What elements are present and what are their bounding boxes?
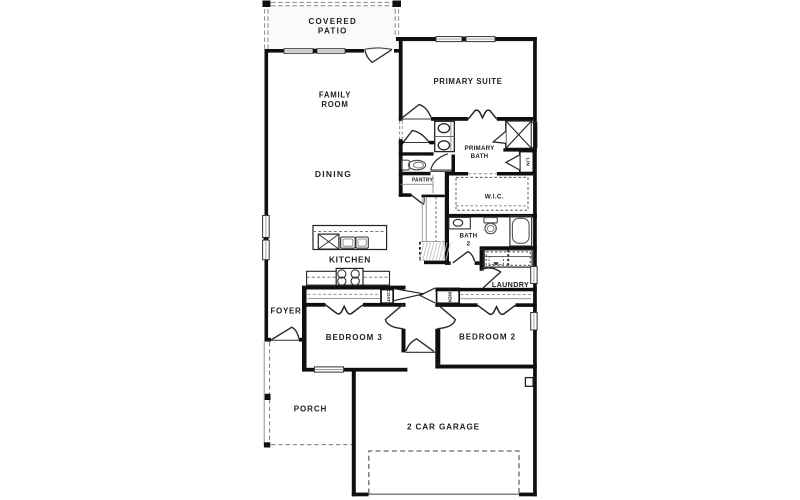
svg-text:LIN: LIN	[526, 158, 531, 166]
svg-text:PRIMARY: PRIMARY	[464, 145, 495, 152]
svg-text:LAUNDRY: LAUNDRY	[492, 280, 529, 289]
svg-text:PANTRY: PANTRY	[412, 178, 434, 184]
svg-text:W.I.C.: W.I.C.	[485, 194, 504, 201]
svg-text:PORCH: PORCH	[294, 405, 327, 414]
svg-text:2 CAR GARAGE: 2 CAR GARAGE	[407, 422, 480, 431]
svg-text:KITCHEN: KITCHEN	[329, 255, 371, 265]
svg-text:BATH: BATH	[460, 233, 478, 240]
svg-text:COAT: COAT	[386, 290, 391, 302]
svg-text:DINING: DINING	[315, 169, 352, 179]
svg-text:BATH: BATH	[471, 153, 489, 160]
svg-text:PRIMARY SUITE: PRIMARY SUITE	[433, 77, 502, 86]
svg-text:BEDROOM 2: BEDROOM 2	[459, 333, 516, 342]
svg-text:FAMILY: FAMILY	[319, 91, 351, 100]
svg-text:FOYER: FOYER	[270, 307, 301, 316]
svg-text:2: 2	[467, 241, 471, 248]
svg-text:BEDROOM 3: BEDROOM 3	[326, 333, 383, 342]
svg-text:LINEN: LINEN	[448, 289, 453, 302]
svg-text:PATIO: PATIO	[318, 27, 348, 36]
svg-text:COVERED: COVERED	[308, 17, 357, 26]
svg-text:ROOM: ROOM	[321, 100, 348, 109]
